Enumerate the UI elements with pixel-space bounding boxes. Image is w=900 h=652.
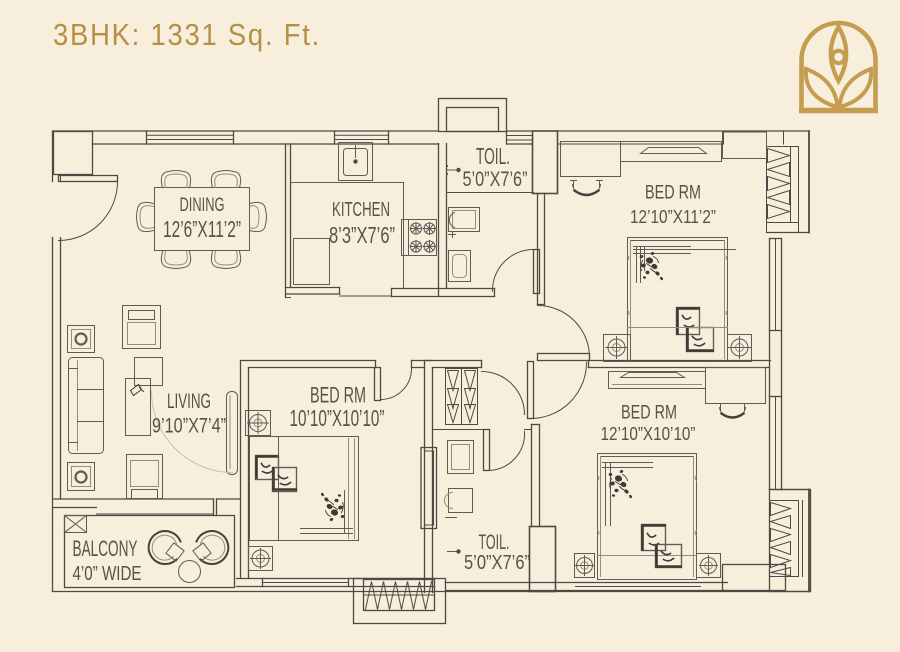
svg-text:3BHK: 1331 Sq. Ft.: 3BHK: 1331 Sq. Ft. (53, 17, 321, 52)
svg-text:12’6”X11’2”: 12’6”X11’2” (163, 216, 241, 242)
svg-text:5’0”X7’6”: 5’0”X7’6” (463, 167, 528, 191)
svg-text:8’3”X7’6”: 8’3”X7’6” (329, 222, 395, 248)
svg-text:4’0” WIDE: 4’0” WIDE (73, 562, 142, 585)
svg-text:BALCONY: BALCONY (73, 536, 138, 561)
svg-text:9’10”X7’4”: 9’10”X7’4” (152, 414, 226, 438)
svg-text:BED RM: BED RM (645, 182, 701, 204)
svg-text:BED RM: BED RM (621, 402, 677, 424)
svg-text:BED RM: BED RM (310, 383, 366, 408)
svg-text:12’10”X10’10”: 12’10”X10’10” (601, 423, 696, 444)
svg-text:LIVING: LIVING (167, 390, 211, 413)
svg-text:KITCHEN: KITCHEN (332, 199, 390, 221)
svg-text:12’10”X11’2”: 12’10”X11’2” (630, 206, 716, 227)
svg-text:DINING: DINING (180, 194, 225, 216)
svg-text:TOIL.: TOIL. (476, 143, 510, 169)
svg-text:5’0”X7’6”: 5’0”X7’6” (464, 552, 530, 574)
svg-text:TOIL.: TOIL. (479, 531, 510, 554)
svg-text:10’10”X10’10”: 10’10”X10’10” (290, 405, 385, 431)
